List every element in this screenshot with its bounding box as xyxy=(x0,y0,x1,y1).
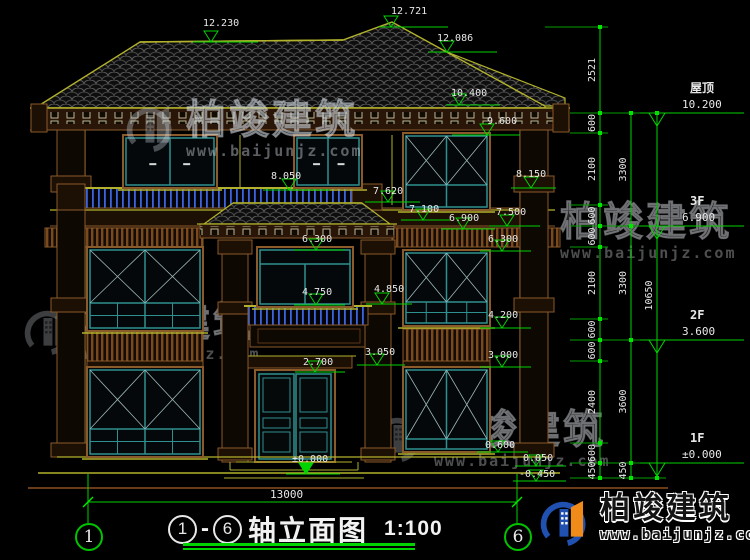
marker-label: 2.700 xyxy=(303,357,333,368)
dim-tick xyxy=(629,338,633,342)
marker-label: 3.050 xyxy=(365,347,395,358)
floor-name: 2F xyxy=(690,308,704,322)
dim-tick xyxy=(598,317,602,321)
dim-value: 600 xyxy=(587,320,598,338)
floor-elevation: 3.600 xyxy=(682,325,715,338)
marker-label: 6.300 xyxy=(302,234,332,245)
dim-tick xyxy=(598,441,602,445)
marker-label: 8.050 xyxy=(271,171,301,182)
marker-label: 4.750 xyxy=(302,287,332,298)
dim-value: 3300 xyxy=(618,157,629,181)
title-underline-thick xyxy=(183,543,415,546)
dim-value: 600 xyxy=(587,444,598,462)
elevation-marker: -0.450 xyxy=(513,469,566,481)
dim-tick xyxy=(598,224,602,228)
marker-label: 7.100 xyxy=(409,204,439,215)
axis-bubble-6: 6 xyxy=(504,523,532,551)
marker-label: 7.500 xyxy=(496,207,526,218)
window xyxy=(398,367,495,454)
floor-name: 3F xyxy=(690,194,704,208)
marker-label: 3.000 xyxy=(488,350,518,361)
marker-label: 10.400 xyxy=(451,88,487,99)
marker-label: ±0.000 xyxy=(292,454,328,465)
window xyxy=(118,135,222,190)
marker-label: 7.620 xyxy=(373,186,403,197)
elevation-drawing: 12.23012.72112.08610.4009.6008.0508.1507… xyxy=(0,0,750,560)
dim-value: 2521 xyxy=(587,58,598,82)
dim-value: 2100 xyxy=(587,157,598,181)
marker-label: 4.850 xyxy=(374,284,404,295)
floor-flag: 3F6.900 xyxy=(640,194,744,239)
dim-value: 2400 xyxy=(587,390,598,414)
marker-label: 12.230 xyxy=(203,18,239,29)
marker-label: 4.200 xyxy=(488,310,518,321)
dim-tick xyxy=(629,461,633,465)
marker-label: 0.600 xyxy=(485,440,515,451)
dim-value: 3600 xyxy=(618,389,629,413)
title-separator: - xyxy=(201,515,209,543)
dim-tick xyxy=(598,203,602,207)
floor-name: 屋顶 xyxy=(690,81,714,95)
dim-value: 600 xyxy=(587,206,598,224)
marker-triangle xyxy=(204,31,218,42)
dim-tick xyxy=(598,111,602,115)
entry-door xyxy=(255,370,335,462)
marker-label: 0.050 xyxy=(523,453,553,464)
dim-tick xyxy=(598,25,602,29)
elevation-marker: 12.721 xyxy=(379,6,448,27)
floor-elevation: 10.200 xyxy=(682,98,722,111)
dim-value: 600 xyxy=(587,341,598,359)
elevation-marker: 12.230 xyxy=(193,18,258,42)
marker-label: 9.600 xyxy=(487,116,517,127)
overall-dim-value: 13000 xyxy=(270,488,303,501)
dim-tick xyxy=(598,461,602,465)
marker-label: -0.450 xyxy=(519,469,555,480)
dim-value: 450 xyxy=(587,461,598,479)
cad-viewport: 12.23012.72112.08610.4009.6008.0508.1507… xyxy=(0,0,750,560)
dim-tick xyxy=(598,245,602,249)
dim-value: 450 xyxy=(618,461,629,479)
window xyxy=(398,133,495,212)
elevation-marker: 0.050 xyxy=(515,453,566,466)
floor-elevation: 6.900 xyxy=(682,211,715,224)
title-underline-thin xyxy=(183,548,415,550)
title-axis-start: 1 xyxy=(168,515,197,544)
marker-label: 6.300 xyxy=(488,234,518,245)
window xyxy=(398,250,495,328)
axis-bubble-1: 1 xyxy=(75,523,103,551)
canvas: { "drawing": { "axis_left": "1", "axis_r… xyxy=(0,0,750,560)
marker-label: 12.086 xyxy=(437,33,473,44)
marker-label: 6.900 xyxy=(449,213,479,224)
floor-flag: 1F±0.000 xyxy=(640,431,744,476)
dim-tick xyxy=(598,359,602,363)
floor-flag: 2F3.600 xyxy=(640,308,744,353)
floor-elevation: ±0.000 xyxy=(682,448,722,461)
dim-value: 600 xyxy=(587,114,598,132)
marker-label: 12.721 xyxy=(391,6,427,17)
window xyxy=(82,367,208,459)
bay-roof xyxy=(197,203,397,238)
floor-flag: 屋顶10.200 xyxy=(640,81,744,126)
drawing-scale: 1:100 xyxy=(384,517,443,541)
dim-tick xyxy=(598,476,602,480)
title-axis-end: 6 xyxy=(213,515,242,544)
floor-name: 1F xyxy=(690,431,704,445)
dim-value: 600 xyxy=(587,227,598,245)
dim-tick xyxy=(629,111,633,115)
window xyxy=(82,247,208,333)
dim-value: 3300 xyxy=(618,271,629,295)
dim-value: 10650 xyxy=(644,280,655,310)
marker-label: 8.150 xyxy=(516,169,546,180)
house-linework xyxy=(28,22,668,488)
window xyxy=(252,247,358,309)
dim-tick xyxy=(598,338,602,342)
dim-tick xyxy=(629,476,633,480)
dim-value: 2100 xyxy=(587,271,598,295)
dim-tick xyxy=(629,224,633,228)
dim-tick xyxy=(598,131,602,135)
